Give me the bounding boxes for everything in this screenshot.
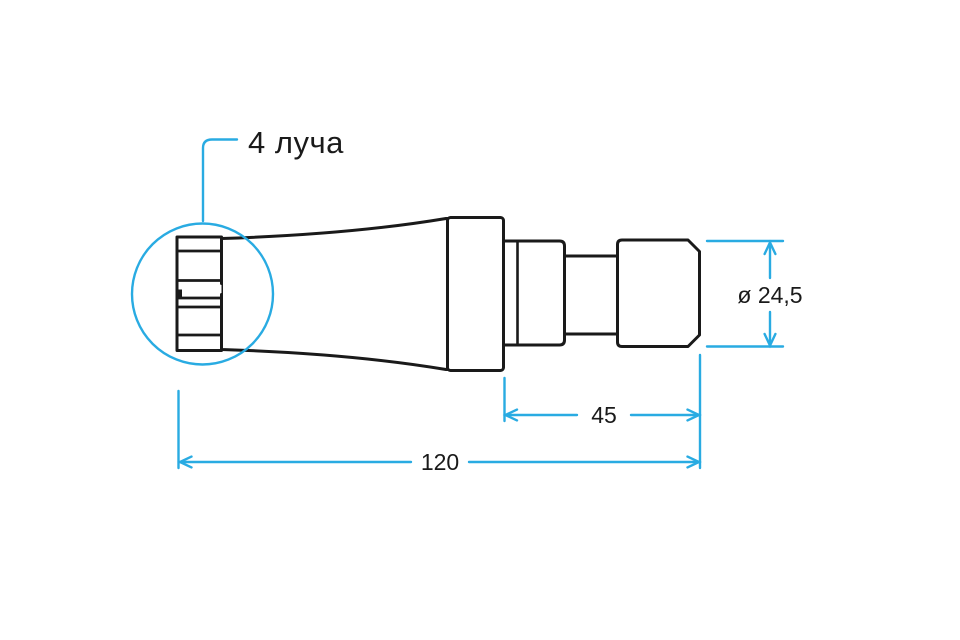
diagram-canvas: 4 луча ø 24,5 45 120 bbox=[0, 0, 960, 640]
part-tip-slot-notch bbox=[176, 290, 183, 299]
part-cone-body bbox=[222, 219, 448, 370]
part-end-cap bbox=[618, 240, 700, 347]
callout-label: 4 луча bbox=[248, 125, 344, 160]
part-collar bbox=[504, 241, 565, 345]
part-tip-body bbox=[176, 237, 222, 351]
dim-label-total-length: 120 bbox=[421, 449, 459, 475]
part-front-band bbox=[448, 218, 504, 371]
callout-leader-line bbox=[203, 140, 237, 222]
dim-label-diameter: ø 24,5 bbox=[737, 282, 802, 308]
technical-drawing: 4 луча ø 24,5 45 120 bbox=[0, 0, 960, 640]
dim-label-mid-length: 45 bbox=[591, 402, 617, 428]
part-outline bbox=[176, 218, 700, 371]
part-neck bbox=[564, 256, 618, 334]
